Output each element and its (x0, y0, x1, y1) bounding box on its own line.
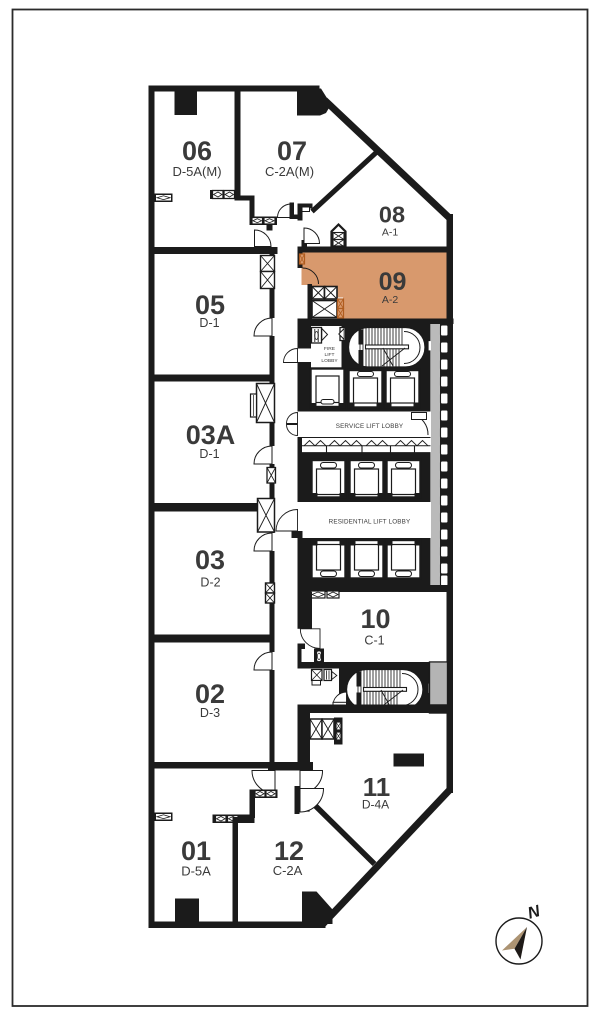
svg-text:RESIDENTIAL LIFT LOBBY: RESIDENTIAL LIFT LOBBY (329, 519, 411, 526)
svg-text:06: 06 (182, 136, 212, 166)
svg-text:01: 01 (181, 836, 211, 866)
svg-text:LOBBY: LOBBY (321, 358, 338, 364)
svg-text:SERVICE LIFT LOBBY: SERVICE LIFT LOBBY (336, 423, 404, 430)
svg-text:D-3: D-3 (200, 706, 220, 720)
svg-text:10: 10 (360, 604, 390, 634)
svg-text:07: 07 (277, 136, 307, 166)
svg-text:09: 09 (379, 268, 407, 296)
svg-text:D-5A: D-5A (181, 864, 211, 879)
svg-text:A-1: A-1 (382, 227, 399, 239)
svg-text:D-2: D-2 (200, 576, 220, 590)
svg-text:C-2A: C-2A (273, 863, 303, 878)
svg-text:C-2A(M): C-2A(M) (265, 164, 314, 179)
svg-text:08: 08 (379, 202, 405, 228)
svg-text:D-4A: D-4A (362, 798, 389, 812)
svg-text:A-2: A-2 (382, 294, 399, 306)
svg-text:12: 12 (274, 836, 304, 866)
svg-text:02: 02 (195, 679, 225, 709)
svg-text:FIRE: FIRE (324, 346, 336, 352)
svg-text:03: 03 (195, 545, 225, 575)
svg-text:D-1: D-1 (199, 447, 219, 461)
svg-text:C-1: C-1 (364, 634, 384, 648)
svg-text:03A: 03A (186, 420, 236, 450)
svg-text:D-5A(M): D-5A(M) (172, 164, 221, 179)
svg-text:D-1: D-1 (199, 316, 219, 330)
svg-text:LIFT: LIFT (324, 352, 334, 358)
